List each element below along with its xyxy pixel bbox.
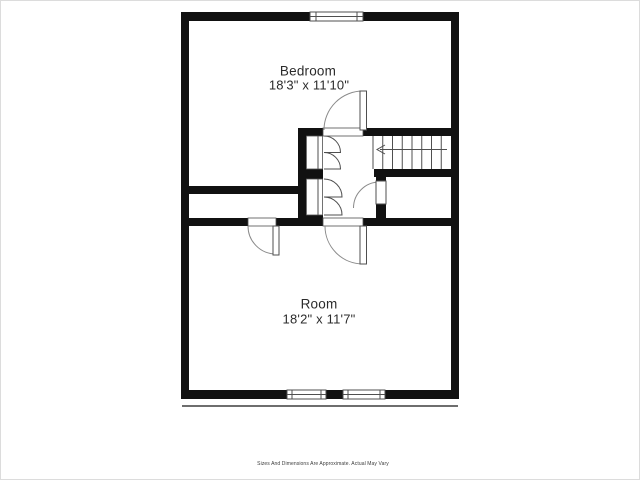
door-leaf: [273, 226, 279, 255]
room-top-wall-left: [189, 218, 248, 226]
hall-top-wall-right: [363, 128, 451, 136]
closet-divider-wall: [306, 169, 323, 179]
room-dimensions: 18'2" x 11'7": [283, 312, 356, 327]
room-door-hallway: [323, 218, 367, 264]
bedroom-lower-wall: [189, 186, 306, 194]
window-bottom-left: [287, 390, 326, 399]
outer-wall-right: [451, 12, 459, 399]
understair-closet-door: [354, 181, 387, 208]
door-swing-arc: [248, 226, 276, 254]
room-top-wall-mid: [276, 218, 300, 226]
bifold-closet-upper: [307, 136, 341, 169]
hall-left-wall: [298, 128, 306, 226]
bifold-door-icon: [324, 197, 342, 215]
room-label: Room: [301, 297, 338, 312]
outer-wall-left: [181, 12, 189, 399]
window-top: [310, 12, 363, 21]
door-leaf: [376, 181, 386, 204]
staircase: [373, 136, 447, 169]
door-leaf: [360, 226, 367, 264]
bifold-door-icon: [324, 179, 342, 197]
bedroom-label: Bedroom: [280, 64, 336, 79]
disclaimer-text: Sizes And Dimensions Are Approximate. Ac…: [257, 461, 389, 467]
room-door-left: [248, 218, 279, 255]
hall-bottom-wall-cap: [298, 215, 323, 226]
bedroom-door: [323, 91, 367, 136]
door-leaf: [360, 91, 367, 130]
bedroom-dimensions: 18'3" x 11'10": [269, 78, 349, 93]
floorplan-page: Bedroom 18'3" x 11'10" Room 18'2" x 11'7…: [0, 0, 640, 480]
bifold-door-icon: [324, 136, 341, 153]
door-swing-arc: [324, 91, 363, 130]
bifold-door-icon: [324, 153, 341, 170]
window-bottom-right: [343, 390, 385, 399]
door-swing-arc: [325, 226, 363, 264]
bifold-closet-lower: [307, 179, 343, 215]
